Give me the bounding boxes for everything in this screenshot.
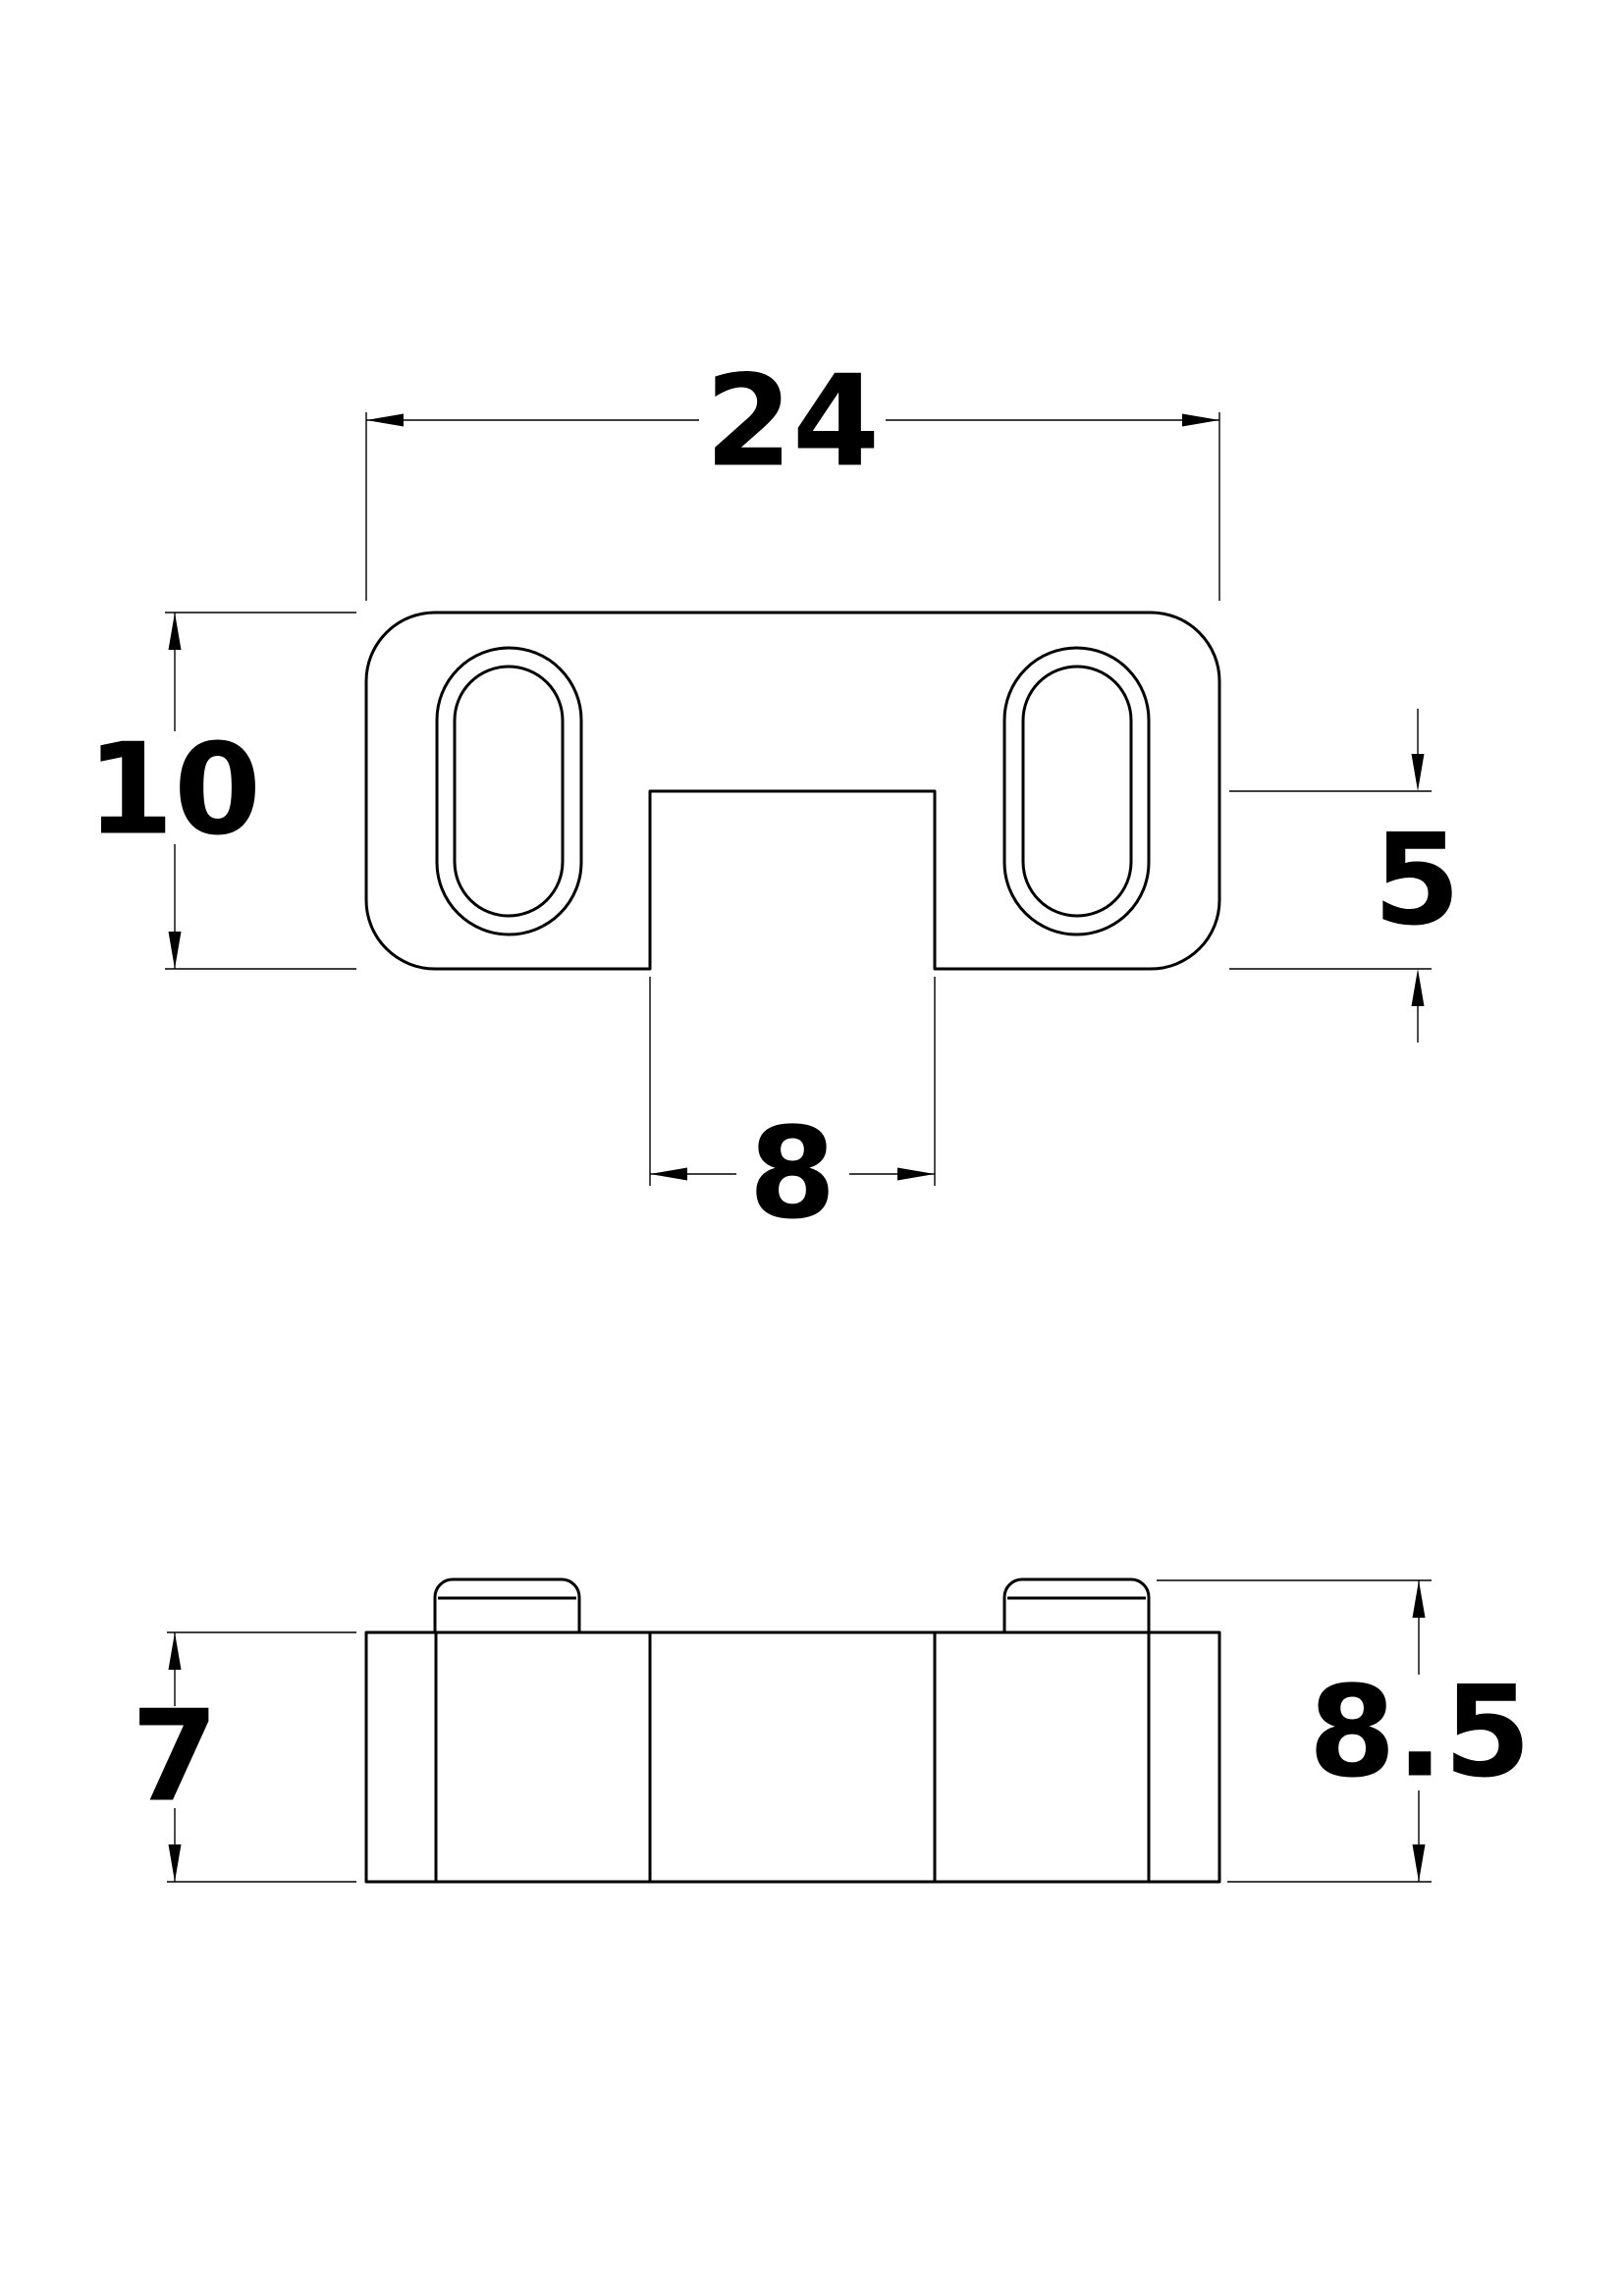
side-view-arrowheads — [169, 1580, 1426, 1882]
dim-overall-height-arrow-top — [1413, 1580, 1426, 1618]
right-slot-inner — [1023, 667, 1131, 916]
dim-notch-depth-arrow-top — [1412, 754, 1425, 791]
drawing-sheet: 24 10 5 8 — [0, 0, 1623, 2296]
dim-body-height-label: 7 — [131, 1684, 218, 1831]
side-view-dimension-lines — [167, 1580, 1432, 1882]
top-view: 24 10 5 8 — [86, 349, 1461, 1248]
top-view-part — [366, 613, 1219, 969]
left-tab-outline — [435, 1579, 579, 1632]
left-slot-inner — [455, 667, 563, 916]
top-view-arrowheads — [169, 414, 1425, 1181]
dim-notch-width-arrow-right — [897, 1168, 935, 1181]
dim-body-height-arrow-bottom — [169, 1844, 182, 1882]
right-slot-outer — [1004, 648, 1149, 934]
dim-height-arrow-bottom — [169, 932, 182, 969]
body-outline — [366, 1632, 1219, 1882]
dim-notch-width-label: 8 — [748, 1101, 836, 1248]
side-view-part — [366, 1579, 1219, 1882]
dim-width-label: 24 — [705, 349, 880, 496]
right-tab-outline — [1004, 1579, 1149, 1632]
dim-width-arrow-right — [1182, 414, 1219, 427]
top-view-dimension-lines — [165, 412, 1432, 1186]
dim-height-label: 10 — [86, 718, 261, 864]
dim-overall-height-label: 8.5 — [1309, 1660, 1532, 1806]
side-view: 7 8.5 — [131, 1579, 1531, 1882]
dim-notch-depth-label: 5 — [1373, 808, 1460, 954]
dim-notch-width-arrow-left — [650, 1168, 687, 1181]
dim-notch-depth-arrow-bottom — [1412, 969, 1425, 1006]
dim-height-arrow-top — [169, 613, 182, 650]
dim-width-arrow-left — [366, 414, 404, 427]
dim-overall-height-arrow-bottom — [1413, 1844, 1426, 1882]
left-slot-outer — [437, 648, 581, 934]
technical-drawing: 24 10 5 8 — [0, 0, 1623, 2296]
dim-body-height-arrow-top — [169, 1632, 182, 1670]
